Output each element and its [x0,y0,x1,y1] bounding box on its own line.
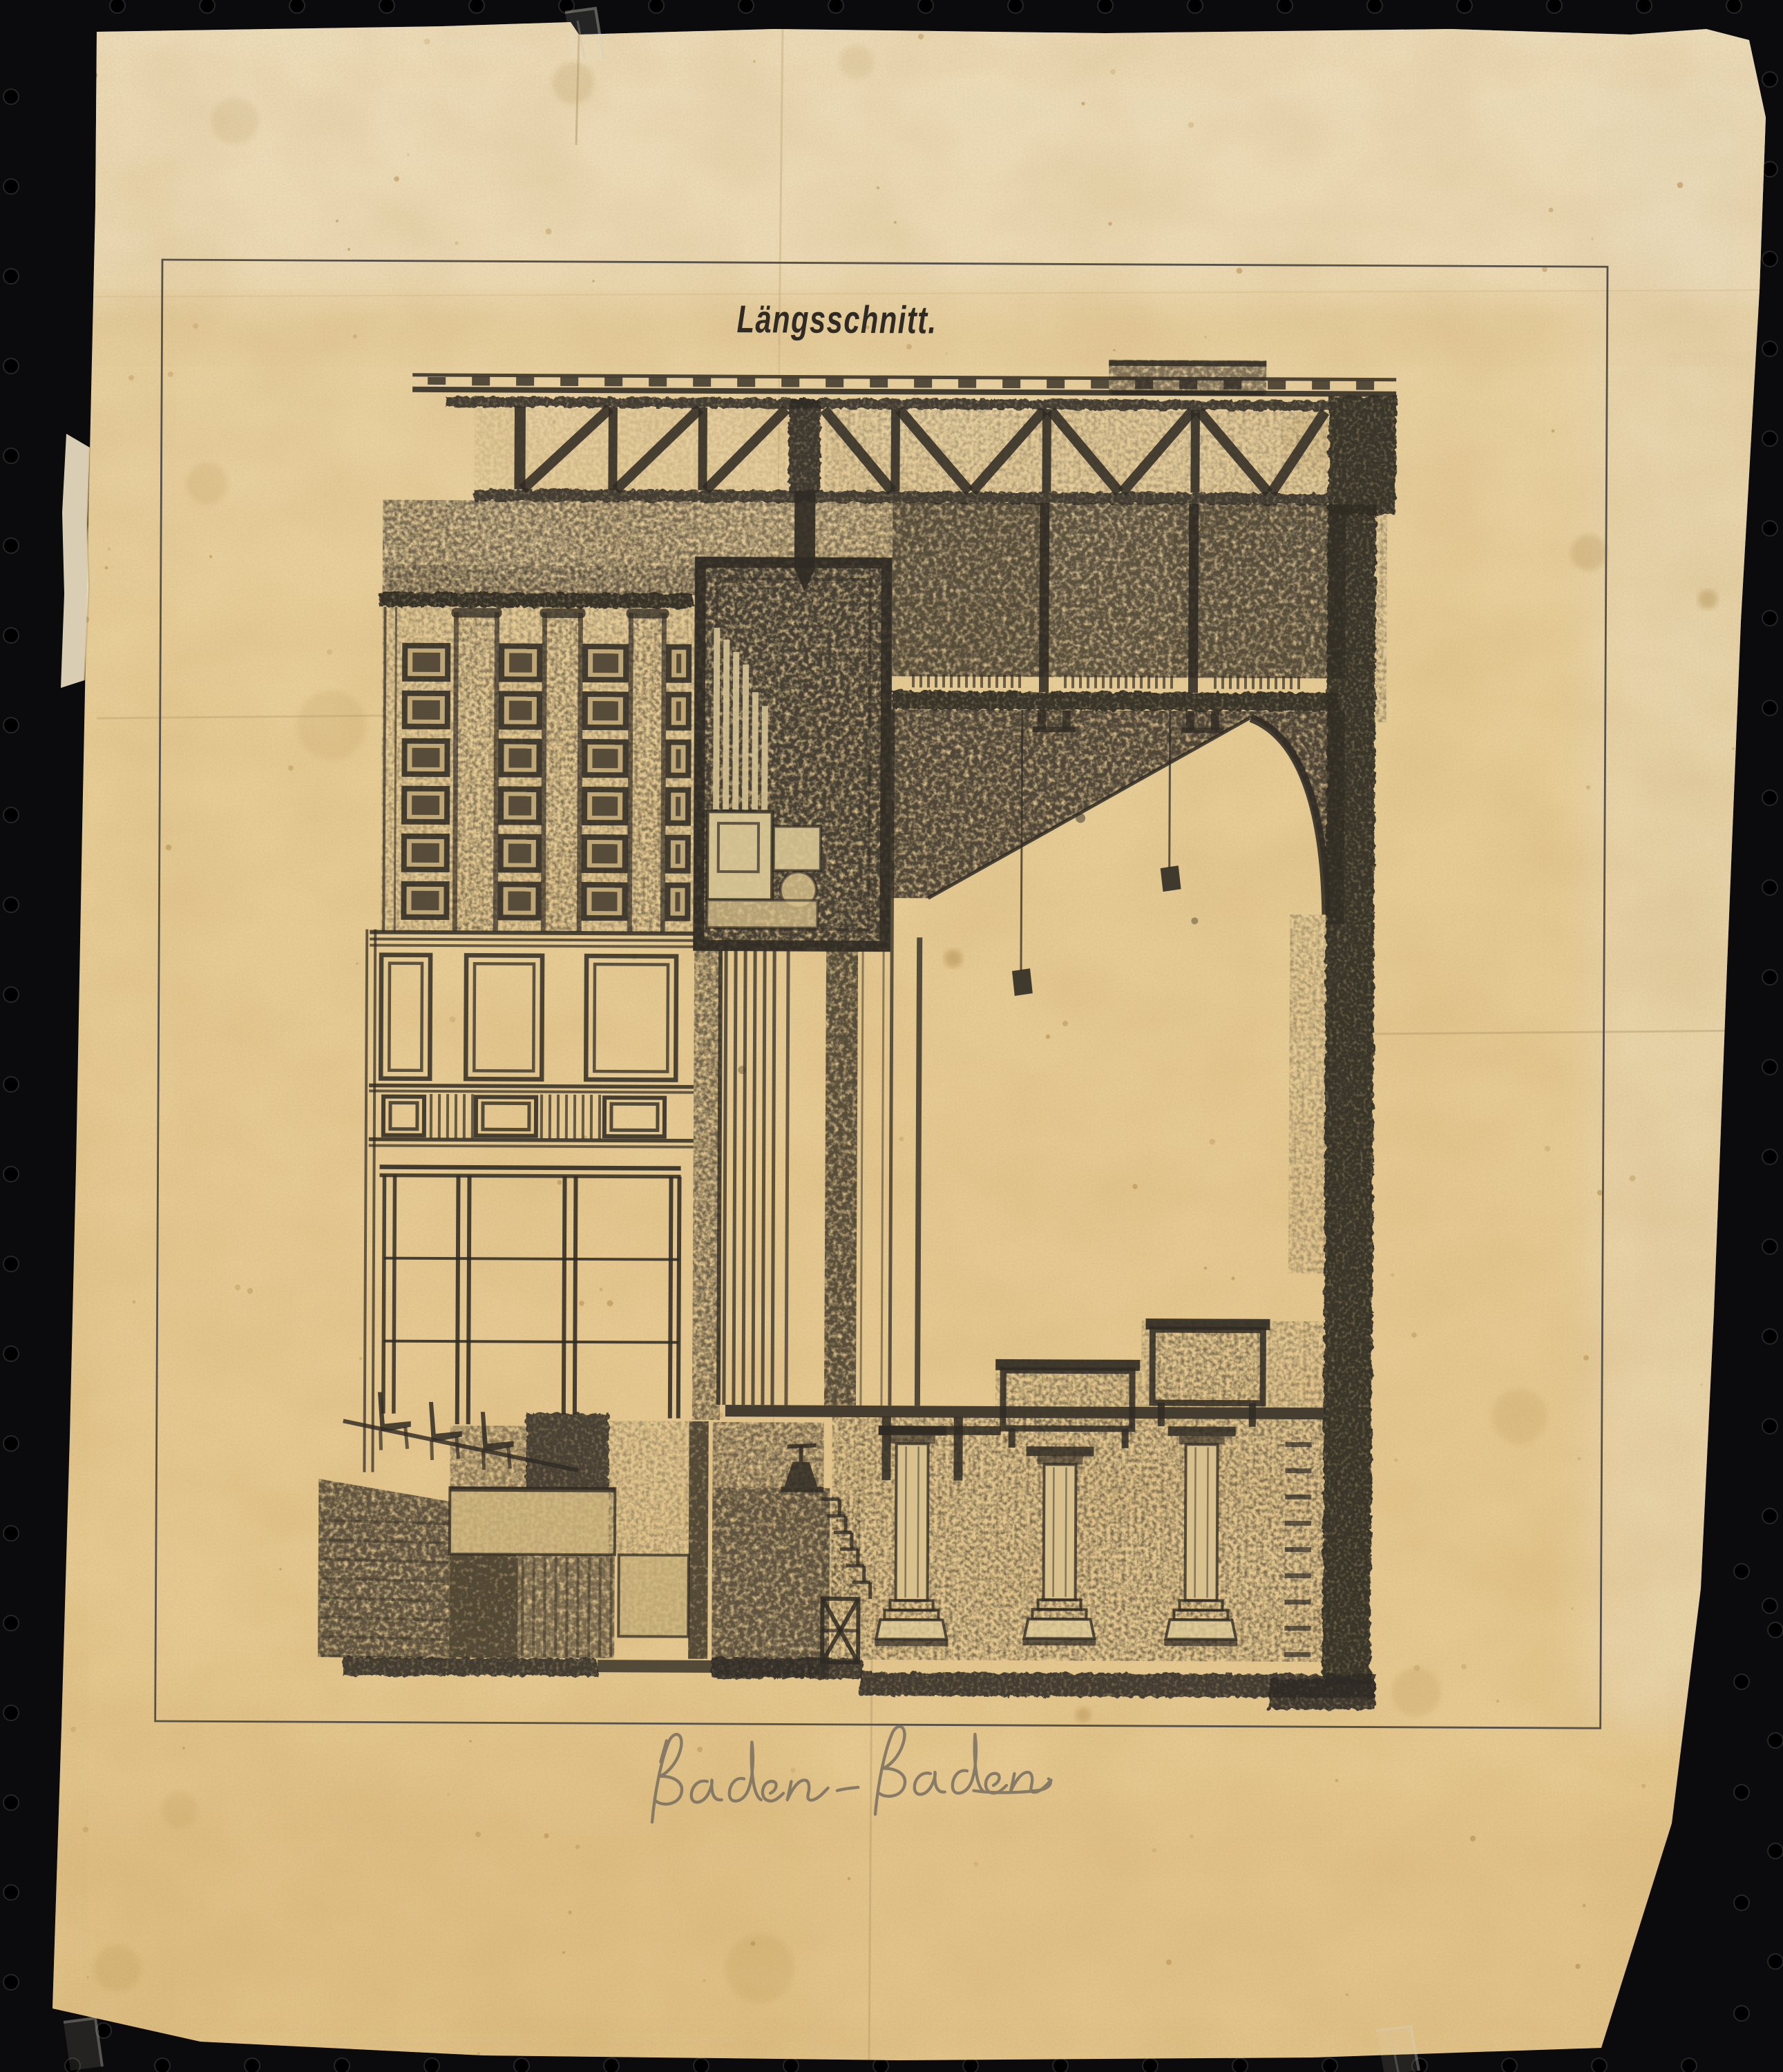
svg-text:Längsschnitt.: Längsschnitt. [736,297,937,341]
